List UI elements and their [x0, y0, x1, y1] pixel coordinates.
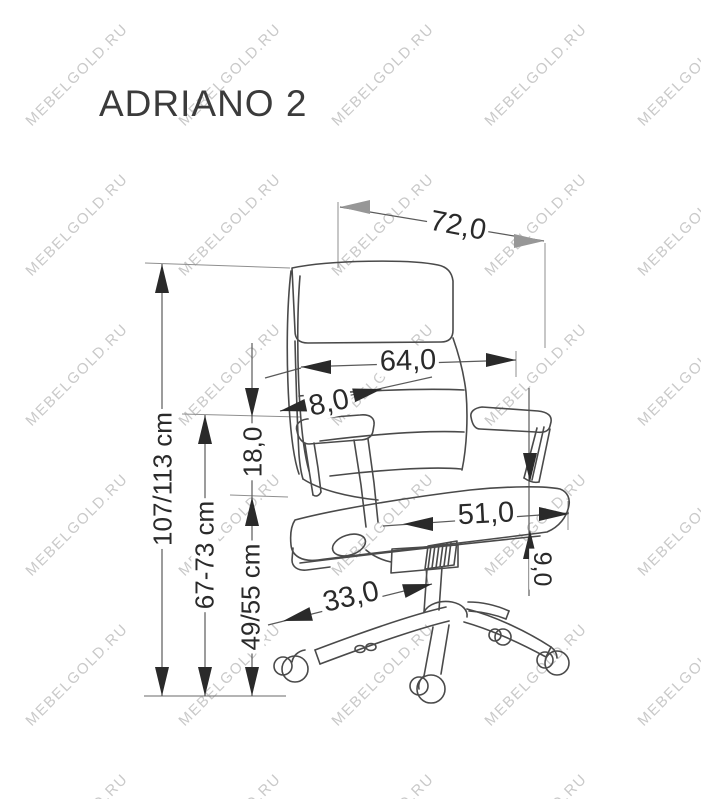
- dim-label-armrest-height: 67-73 cm: [191, 498, 218, 612]
- arrow-64-left: [301, 360, 331, 374]
- chair-headrest: [292, 261, 453, 343]
- arrow-51-left: [403, 517, 433, 531]
- dim-label-back-width: 64,0: [376, 345, 439, 378]
- arrow-64-right: [486, 353, 516, 367]
- arrow-33-right: [402, 584, 432, 598]
- arrow-107-bottom: [155, 667, 169, 696]
- dim-label-armrest-to-seat: 18,0: [239, 424, 266, 481]
- dim-label-total-height: 107/113 cm: [149, 409, 176, 549]
- arrow-33-left: [283, 607, 313, 621]
- arrow-67-bottom: [198, 667, 212, 696]
- dimension-arrows: [155, 200, 569, 696]
- arrow-8-right: [352, 389, 382, 403]
- dim-label-seat-depth: 51,0: [454, 497, 518, 531]
- dim-label-seat-thickness: 9,0: [529, 549, 555, 590]
- arrow-18-bottom: [245, 497, 259, 526]
- arrow-18-top: [245, 388, 259, 417]
- arrow-107-top: [155, 264, 169, 293]
- page-title: ADRIANO 2: [99, 83, 307, 125]
- dimension-lines: [162, 207, 569, 696]
- arrow-72-left: [340, 200, 370, 214]
- arrow-49-bottom: [245, 667, 259, 696]
- chair-drawing: [274, 261, 569, 703]
- arrow-72-right: [514, 234, 544, 248]
- diagram-page: MEBELGOLD.RUMEBELGOLD.RUMEBELGOLD.RUMEBE…: [0, 0, 701, 799]
- dim-label-seat-height: 49/55 cm: [237, 541, 264, 654]
- chair-casters: [274, 629, 569, 703]
- arrow-51-right: [539, 507, 569, 521]
- chair-armrest-right: [471, 407, 551, 482]
- arrow-67-top: [198, 415, 212, 444]
